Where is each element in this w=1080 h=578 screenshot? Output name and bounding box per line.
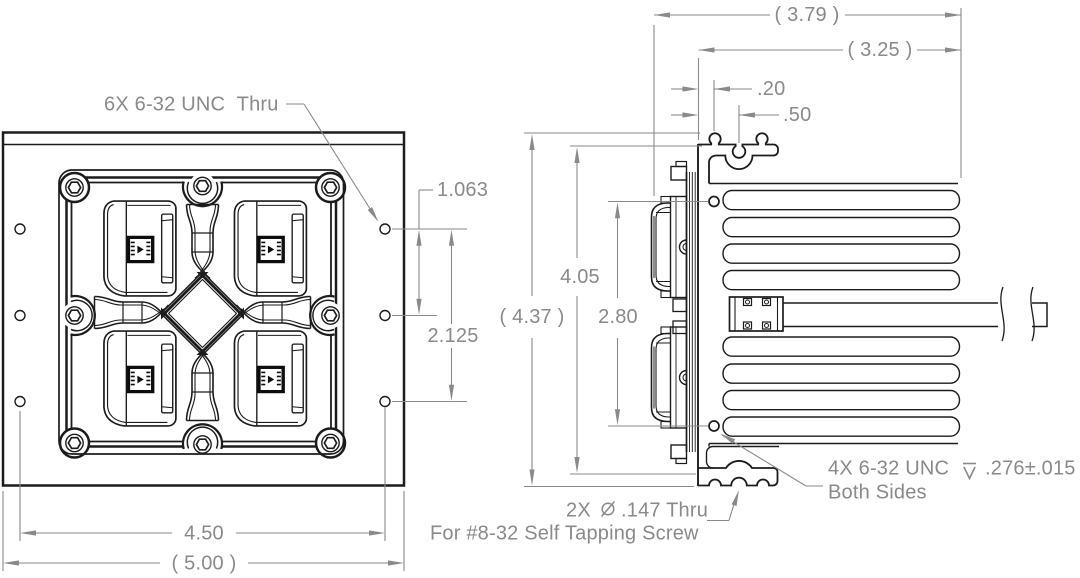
svg-text:2.125: 2.125 (427, 325, 478, 347)
svg-text:4.05: 4.05 (560, 266, 600, 288)
svg-text:( 4.37 ): ( 4.37 ) (500, 306, 565, 328)
svg-text:1.063: 1.063 (437, 179, 488, 201)
svg-text:.20: .20 (757, 78, 785, 100)
svg-text:For #8-32 Self Tapping Screw: For #8-32 Self Tapping Screw (430, 523, 699, 545)
svg-text:.147 Thru: .147 Thru (621, 500, 708, 522)
svg-text:2X: 2X (566, 500, 591, 522)
svg-text:( 3.25 ): ( 3.25 ) (848, 39, 913, 61)
svg-text:2.80: 2.80 (598, 306, 638, 328)
svg-text:4.50: 4.50 (184, 523, 224, 545)
svg-text:4X 6-32 UNC: 4X 6-32 UNC (828, 458, 949, 480)
svg-text:.50: .50 (783, 104, 811, 126)
svg-text:( 3.79 ): ( 3.79 ) (775, 4, 840, 26)
svg-text:Both Sides: Both Sides (828, 482, 927, 504)
svg-text:( 5.00 ): ( 5.00 ) (172, 553, 237, 575)
svg-text:6X 6-32 UNC Thru: 6X 6-32 UNC Thru (104, 94, 279, 116)
svg-text:.276±.015: .276±.015 (985, 458, 1076, 480)
